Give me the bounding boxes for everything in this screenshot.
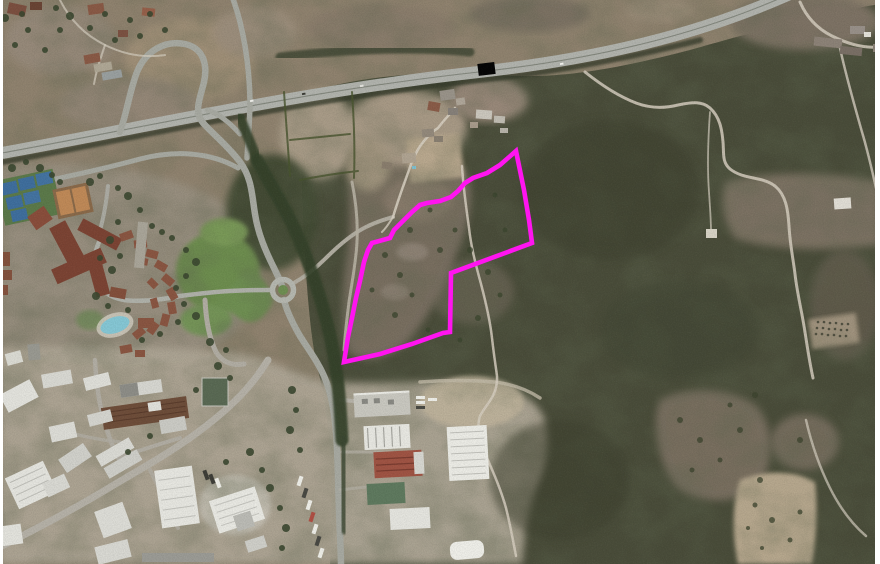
grain-light (0, 0, 880, 564)
satellite-basemap (0, 0, 880, 564)
right-margin (875, 0, 880, 564)
map-canvas[interactable] (0, 0, 880, 564)
left-margin (0, 0, 3, 564)
